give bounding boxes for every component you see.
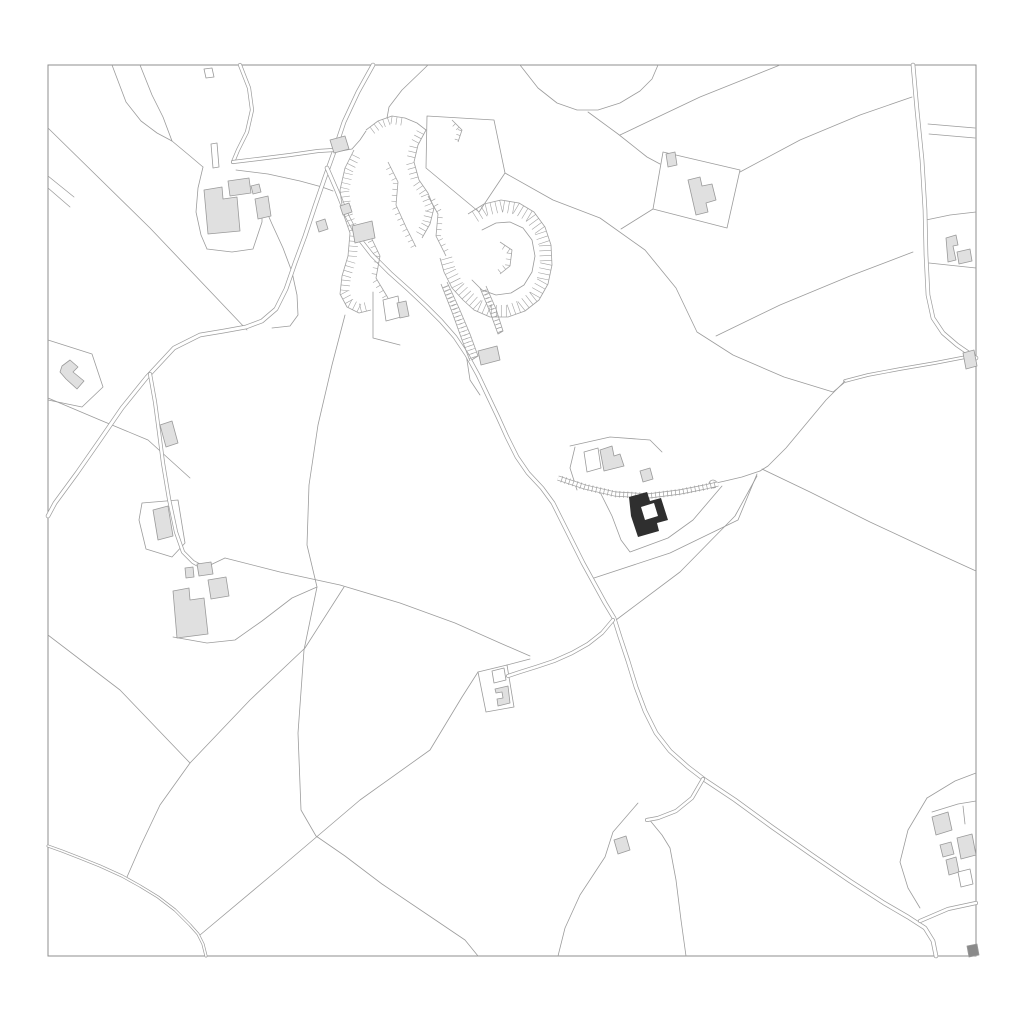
mound-1-left-edge-ticks	[442, 286, 474, 359]
hamlet-inner-1	[932, 801, 976, 812]
cottage-west-road	[160, 421, 178, 447]
mound-2-left-edge-ticks	[482, 290, 503, 333]
road-main-southeast-inner	[327, 168, 936, 956]
farm-mid-building-2	[208, 577, 229, 599]
plot-right-building-r	[957, 249, 972, 264]
boundary-top-c	[172, 141, 203, 167]
site-building-black	[629, 492, 668, 537]
boundary-right-strip-1	[928, 124, 975, 128]
stream-southwest	[48, 846, 206, 956]
enclosure-shed	[666, 152, 677, 167]
house-bottom-mid-outline	[492, 668, 506, 683]
road-east	[913, 65, 976, 358]
quarry-texture-1	[388, 162, 416, 247]
hamlet-building-1	[932, 812, 952, 835]
road-hamlet-branch-inner	[920, 903, 976, 921]
lane-bottom-mid-inner	[508, 620, 613, 676]
boundary-bottom-diag	[200, 672, 478, 935]
enclosure-ne-tail	[621, 209, 653, 229]
plot-right-building-l	[946, 235, 958, 262]
plot-right-s	[929, 263, 976, 268]
quarry-texture-5-ticks	[453, 124, 462, 141]
boundary-right-strip-2	[929, 134, 975, 138]
boundary-strip-1	[48, 176, 74, 197]
boundary-quarry-ne	[387, 65, 428, 118]
farm-mid-building-3	[185, 567, 194, 578]
track-to-site	[716, 471, 760, 483]
quarry-texture-4-ticks	[498, 245, 512, 273]
quarry-rim-link-3	[405, 118, 426, 130]
hamlet-building-4	[957, 834, 976, 859]
lane-bottom-spur-inner	[647, 779, 703, 820]
boundary-top-b	[140, 65, 172, 141]
boundary-junction-ne-2	[594, 474, 757, 578]
enclosure-t-building	[688, 177, 716, 215]
lane-nw-a-inner	[233, 65, 252, 162]
stream-southwest-inner	[48, 846, 206, 956]
road-main-southeast	[327, 168, 936, 956]
lane-nw-b-inner	[233, 150, 334, 162]
farm-mid-building-main	[173, 588, 208, 638]
site-map	[0, 0, 1024, 1024]
house-bottom-mid-c	[495, 686, 510, 706]
building-right-lower	[963, 350, 977, 369]
quarry-texture-4	[500, 242, 512, 274]
boundary-topright-diag	[620, 65, 780, 135]
farm-nw-building-thin	[211, 143, 219, 168]
farm-e-outline	[584, 448, 601, 472]
map-frame	[48, 65, 976, 956]
lane-bottom-mid	[508, 620, 613, 676]
road-main-west	[48, 65, 373, 516]
farm-e-building-l	[600, 446, 624, 471]
farm-e-plot-n	[570, 437, 662, 452]
building-top-edge	[204, 68, 214, 78]
boundary-top-a	[112, 65, 172, 141]
boundary-east-sweep	[505, 173, 844, 392]
track-east-curve	[760, 381, 845, 471]
building-small-1	[316, 219, 328, 232]
farm-nw-building-3	[255, 196, 271, 219]
plot-bottom-mid-link	[507, 659, 530, 665]
quarry-horseshoe-inner	[472, 222, 535, 295]
t-house-west	[60, 360, 84, 389]
gray-patch-quarry	[478, 346, 500, 365]
boundary-se-from-junction	[762, 469, 976, 571]
boundary-ne-long	[740, 97, 912, 172]
lane-nw-a	[233, 65, 252, 162]
plot-bottom-2	[648, 818, 686, 956]
boundary-long-curve	[298, 315, 478, 956]
quarry-rim-link-2	[352, 131, 366, 149]
mound-2-right-edge-ticks	[483, 290, 503, 333]
hamlet-inner-2	[963, 806, 965, 824]
boundary-east-branch	[716, 252, 913, 336]
building-quarry-side	[352, 221, 375, 243]
quarry-hachure-horseshoe-ticks	[441, 200, 552, 317]
farm-nw-building-4	[251, 184, 261, 194]
quarry-hachure-top	[366, 116, 405, 130]
boundary-v-left	[48, 635, 190, 763]
boundary-v-right	[190, 587, 344, 763]
quarry-texture-5	[452, 120, 462, 142]
quarry-hachure-mid-ticks	[406, 131, 434, 236]
hamlet-w-boundary	[900, 798, 927, 908]
farm-mid-building-4	[197, 562, 213, 576]
farm-nw-building-2	[228, 178, 251, 196]
dark-structure-corner	[967, 944, 979, 957]
boundary-midfarm-se	[225, 558, 530, 656]
plot-right-n	[926, 212, 976, 220]
house-bottom-plot	[614, 836, 630, 854]
boundary-arc-tail	[588, 112, 660, 164]
hamlet-building-3	[946, 857, 959, 875]
boundary-top-arc	[520, 65, 658, 110]
hamlet-building-2	[940, 842, 954, 857]
quarry-texture-1-ticks	[386, 167, 415, 247]
boundary-v-tail	[127, 763, 190, 877]
quarry-hachure-top-ticks	[370, 116, 402, 133]
site-map-stage	[0, 0, 1024, 1024]
farm-e-small-sq	[640, 468, 653, 482]
quarry-diamond-field	[426, 116, 505, 212]
lane-bottom-spur	[647, 779, 703, 820]
hamlet-n-boundary	[927, 773, 976, 798]
plot-t-house	[48, 340, 103, 407]
road-east-inner	[913, 65, 976, 358]
plot-bottom-1	[558, 803, 638, 956]
hamlet-building-5	[958, 869, 973, 887]
